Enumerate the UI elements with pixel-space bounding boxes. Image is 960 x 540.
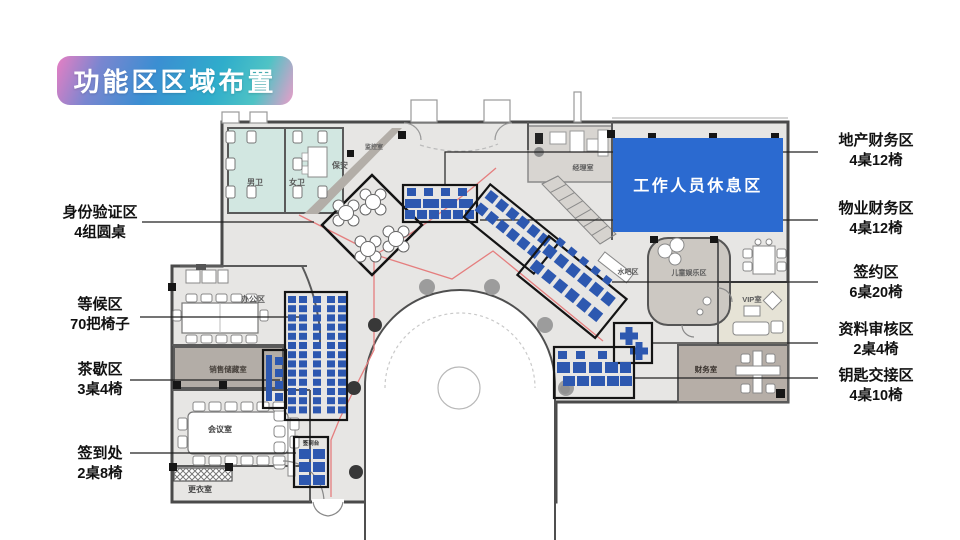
room-label-meeting: 会议室: [208, 424, 232, 434]
staff-rest-area: 工作人员休息区: [613, 138, 783, 232]
callout-signin-title: 签到处: [30, 443, 170, 464]
callout-review-sub: 2桌4椅: [806, 340, 946, 361]
callout-identity-sub: 4组圆桌: [30, 223, 170, 244]
room-label-vip: VIP室: [742, 294, 762, 304]
room-label-storage: 销售储藏室: [209, 364, 247, 374]
callout-estate: 地产财务区 4桌12椅: [806, 130, 946, 172]
callout-waiting-title: 等候区: [30, 294, 170, 315]
callout-signin: 签到处 2桌8椅: [30, 443, 170, 485]
callout-review-title: 资料审核区: [806, 319, 946, 340]
staff-rest-area-label: 工作人员休息区: [633, 176, 763, 195]
callout-identity-title: 身份验证区: [30, 202, 170, 223]
room-label-waterbar: 水吧区: [618, 267, 639, 276]
callout-property: 物业财务区 4桌12椅: [806, 198, 946, 240]
callout-review: 资料审核区 2桌4椅: [806, 319, 946, 361]
atrium-void: [365, 290, 555, 540]
room-label-male-wc: 男卫: [247, 178, 263, 187]
room-label-kids: 儿童娱乐区: [671, 268, 707, 277]
page-title: 功能区区域布置: [57, 56, 293, 105]
callout-signing-title: 签约区: [806, 262, 946, 283]
callout-property-title: 物业财务区: [806, 198, 946, 219]
room-label-finance: 财务室: [694, 364, 718, 374]
room-label-security: 保安: [331, 160, 348, 170]
room-label-manager: 经理室: [573, 163, 594, 172]
room-label-female-wc: 女卫: [289, 177, 305, 187]
callout-property-sub: 4桌12椅: [806, 219, 946, 240]
callout-tea: 茶歇区 3桌4椅: [30, 359, 170, 401]
callout-waiting: 等候区 70把椅子: [30, 294, 170, 336]
callout-key-sub: 4桌10椅: [806, 386, 946, 407]
slide: 工作人员休息区: [0, 0, 960, 540]
callout-signing-sub: 6桌20椅: [806, 283, 946, 304]
callout-estate-sub: 4桌12椅: [806, 151, 946, 172]
callout-key: 钥匙交接区 4桌10椅: [806, 365, 946, 407]
room-label-office: 办公区: [241, 294, 265, 304]
room-label-signin: 签到台: [302, 439, 320, 447]
callout-signin-sub: 2桌8椅: [30, 464, 170, 485]
callout-waiting-sub: 70把椅子: [30, 315, 170, 336]
callout-tea-sub: 3桌4椅: [30, 380, 170, 401]
callout-signing: 签约区 6桌20椅: [806, 262, 946, 304]
callout-estate-title: 地产财务区: [806, 130, 946, 151]
room-label-changing: 更衣室: [188, 484, 212, 494]
room-label-monitor: 监控室: [365, 143, 383, 151]
callout-tea-title: 茶歇区: [30, 359, 170, 380]
callout-key-title: 钥匙交接区: [806, 365, 946, 386]
callout-identity: 身份验证区 4组圆桌: [30, 202, 170, 244]
